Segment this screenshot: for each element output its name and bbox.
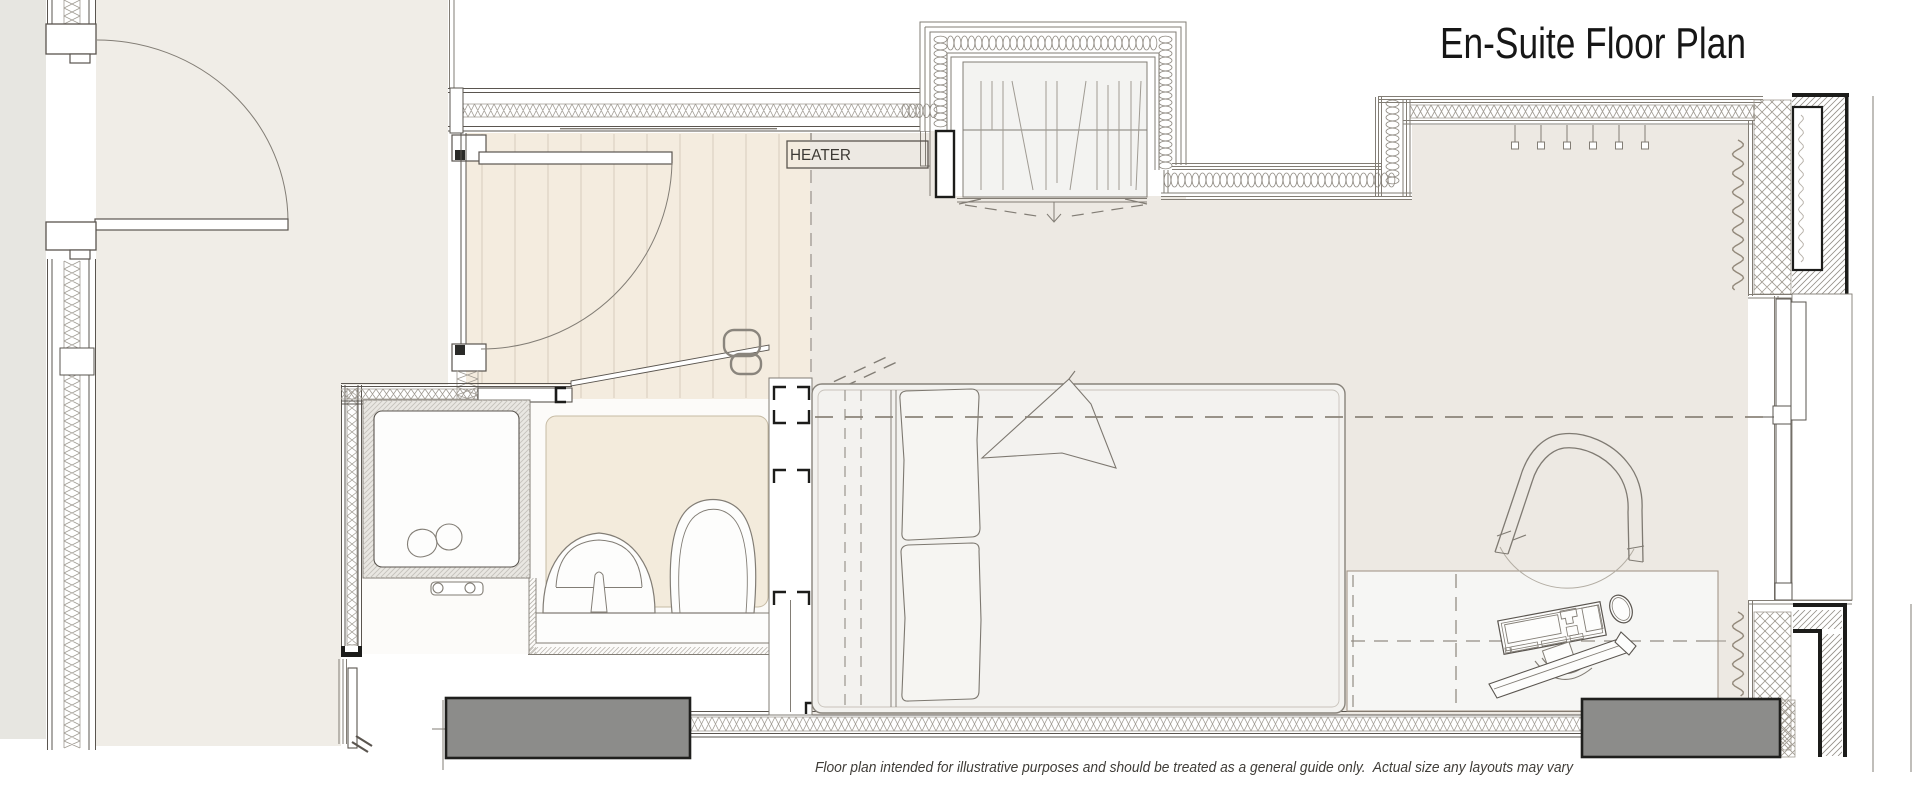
svg-text:HEATER: HEATER — [790, 147, 851, 164]
svg-text:En-Suite Floor Plan: En-Suite Floor Plan — [1440, 19, 1746, 68]
svg-text:Floor plan intended for illust: Floor plan intended for illustrative pur… — [815, 759, 1574, 776]
